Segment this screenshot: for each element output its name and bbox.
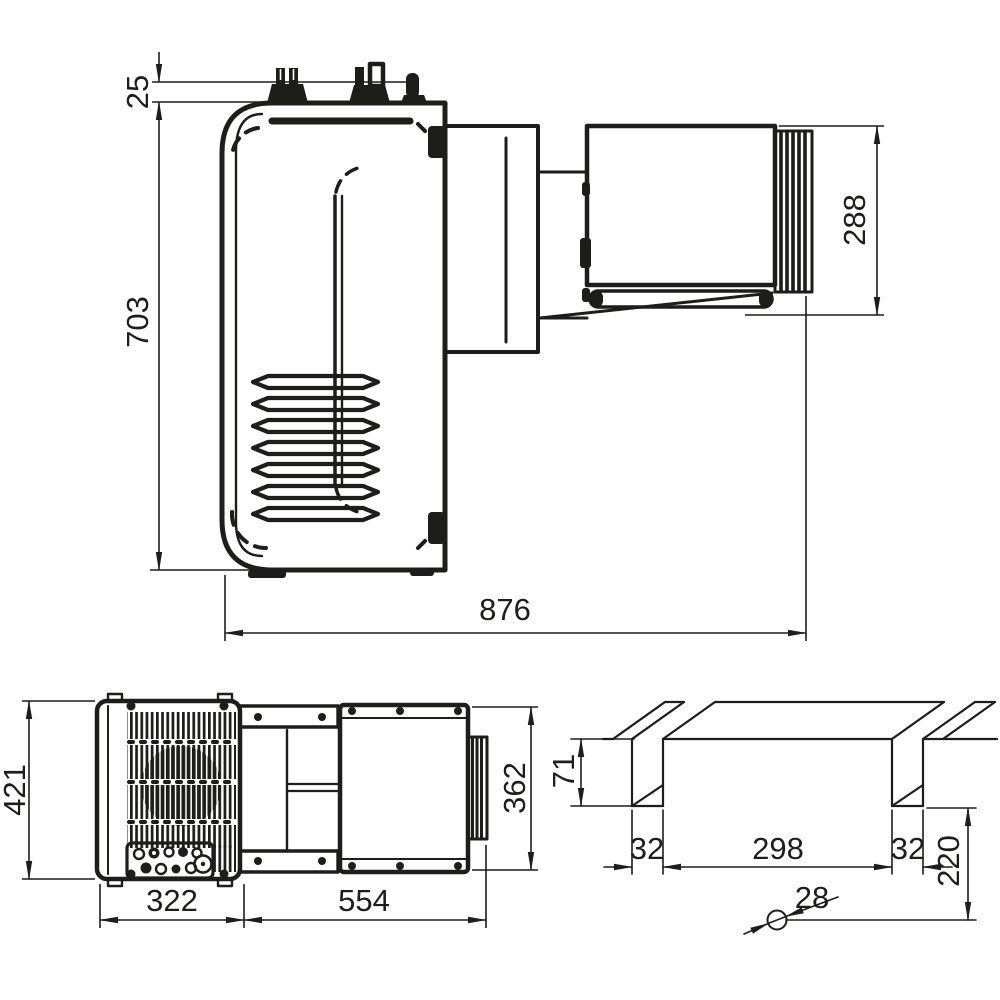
top-connection-plugs (267, 64, 427, 103)
dim-label-220: 220 (931, 835, 966, 887)
wall-mounting-plate (445, 126, 538, 352)
ribbed-collar-plan (468, 737, 487, 839)
dim-421: 421 (0, 701, 95, 879)
ribbed-collar-side (775, 131, 812, 292)
dim-label-32-left: 32 (630, 831, 664, 866)
evaporator-box (587, 126, 775, 285)
dim-label-28: 28 (795, 880, 829, 915)
dim-label-32-right: 32 (891, 831, 925, 866)
dim-label-288: 288 (837, 194, 872, 246)
neck-section (240, 706, 338, 872)
technical-drawing-page: 25 703 288 876 (0, 0, 1000, 1000)
technical-drawing-canvas: 25 703 288 876 (0, 0, 1000, 1000)
dim-label-322: 322 (146, 883, 198, 918)
plan-view: 421 322 554 362 (0, 694, 538, 928)
dim-876: 876 (225, 296, 806, 641)
dim-label-876: 876 (479, 592, 531, 627)
evaporator-box-plan (340, 705, 468, 872)
side-view: 25 703 288 876 (120, 52, 884, 641)
dim-label-703: 703 (120, 296, 155, 348)
wall-cutout-view: 71 32 298 32 220 28 (546, 702, 997, 934)
dim-28-hole: 28 (744, 880, 838, 934)
dim-label-71: 71 (546, 754, 581, 788)
dim-32-298-32: 32 298 32 (604, 810, 952, 874)
vent-louvers (253, 376, 378, 520)
dim-322: 322 (100, 883, 244, 928)
dim-label-421: 421 (0, 764, 32, 816)
dim-554: 554 (244, 845, 486, 928)
dim-label-25: 25 (120, 75, 155, 109)
mounting-bar (590, 291, 772, 307)
dim-label-554: 554 (338, 883, 390, 918)
wall-section-outline (603, 702, 997, 806)
connector-panel (127, 843, 213, 878)
dim-label-362: 362 (497, 762, 532, 814)
dim-label-298: 298 (752, 831, 804, 866)
dim-703: 703 (120, 102, 252, 570)
dim-71: 71 (546, 739, 634, 806)
